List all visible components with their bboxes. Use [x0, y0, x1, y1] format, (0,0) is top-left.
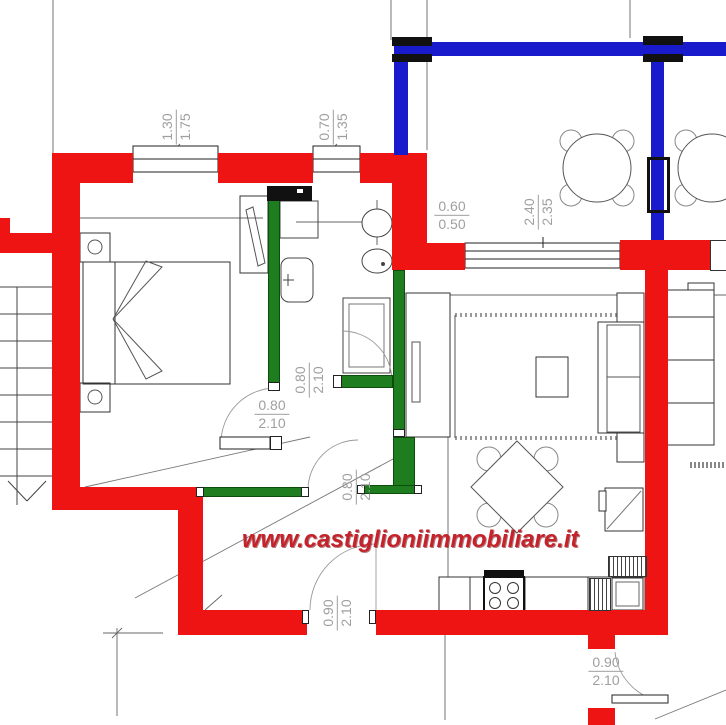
dimension-door-kitchen: 0.902.10	[321, 595, 353, 630]
wall-cap	[268, 382, 280, 391]
wall-cap	[333, 375, 342, 388]
dimension-door-bedroom: 0.802.10	[254, 398, 289, 430]
toilet	[362, 209, 392, 237]
exterior-wall-stub	[0, 218, 10, 253]
nightstand	[80, 233, 110, 262]
niche-dot	[297, 189, 303, 193]
blanket-fold	[113, 319, 162, 379]
terrace-divider-window	[647, 157, 670, 213]
sofa-armrest	[617, 433, 644, 462]
dimension-door-bathroom: 0.802.10	[293, 362, 325, 397]
dimension-door-hall: 0.802.10	[340, 469, 372, 504]
round-table	[563, 134, 631, 202]
door-hinge-block	[270, 436, 282, 450]
party-wall-pillar	[710, 240, 726, 271]
wall-cap	[196, 487, 204, 497]
exterior-wall	[376, 610, 668, 635]
exterior-wall	[392, 183, 427, 243]
pillar-bracket	[643, 54, 683, 62]
exterior-wall	[218, 153, 313, 183]
interior-wall	[393, 270, 405, 437]
door-jamb-cap	[369, 610, 376, 624]
exterior-wall	[392, 243, 465, 270]
door-jamb-cap	[302, 610, 309, 624]
dimension-terrace-window: 2.402.35	[522, 194, 554, 229]
bathroom-niche	[267, 186, 312, 201]
nightstand	[80, 383, 110, 412]
neighbour-furniture	[666, 283, 714, 445]
neighbour-rug-edge	[690, 462, 726, 468]
stove	[484, 577, 524, 612]
pillar-bracket	[643, 36, 683, 45]
stove-back	[484, 570, 524, 577]
wardrobe	[406, 293, 450, 437]
exterior-wall-stub	[10, 233, 57, 253]
bath-cabinet	[280, 201, 318, 238]
staircase	[0, 287, 57, 505]
dimension-window-mid: 0.701.35	[317, 109, 349, 144]
dish-drainer	[589, 578, 611, 611]
drying-rack	[608, 556, 647, 577]
interior-wall	[341, 375, 393, 388]
exterior-wall	[620, 240, 710, 270]
bathroom-fixtures	[280, 200, 392, 373]
dimension-terrace-opening: 0.600.50	[434, 199, 469, 231]
terrace-furniture	[560, 130, 726, 206]
entrance-door-jamb	[588, 708, 615, 725]
wall-cap	[414, 485, 422, 494]
exterior-wall	[178, 510, 203, 635]
wardrobe	[240, 196, 268, 273]
bedroom-furniture	[80, 196, 268, 412]
entrance-door-jamb	[588, 635, 615, 649]
door-leaf-entrance	[612, 695, 668, 703]
exterior-wall	[203, 610, 307, 635]
pillar-bracket	[392, 37, 432, 46]
dimension-door-entrance: 0.902.10	[588, 655, 623, 687]
blanket-fold	[113, 261, 162, 319]
exterior-wall	[360, 153, 427, 183]
sofa	[666, 290, 714, 445]
wall-cap	[301, 487, 309, 497]
floor-plan: 1.301.75 0.701.35 0.600.50 2.402.35 0.80…	[0, 0, 726, 725]
bidet	[362, 249, 392, 273]
interior-wall	[203, 487, 302, 497]
wall-cap	[393, 429, 405, 437]
interior-wall	[268, 190, 280, 390]
sink	[612, 578, 643, 610]
pillar-bracket	[392, 54, 432, 62]
exterior-wall	[645, 270, 668, 610]
dimension-window-left: 1.301.75	[160, 109, 192, 144]
agency-watermark: www.castiglioniimmobiliare.it	[242, 526, 579, 554]
shower	[343, 298, 390, 373]
door-leaf-bedroom	[220, 437, 270, 449]
exterior-wall	[80, 487, 203, 510]
sofa-armrest	[617, 293, 644, 322]
exterior-wall	[52, 153, 133, 183]
coffee-table	[536, 357, 568, 397]
